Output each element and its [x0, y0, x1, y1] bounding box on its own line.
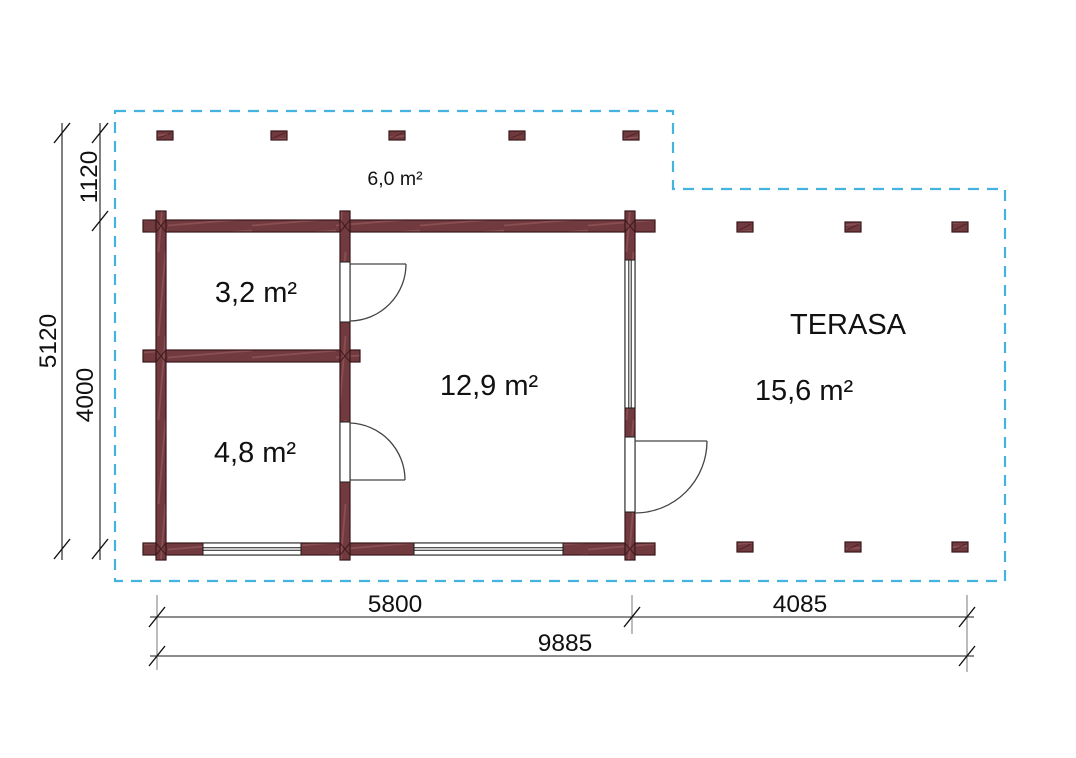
wall-west: [156, 211, 166, 560]
area-labels: 6,0 m² 3,2 m² 4,8 m² 12,9 m² TERASA 15,6…: [214, 168, 907, 469]
wall-room-divider: [143, 350, 360, 362]
door-room-a: [340, 262, 406, 322]
terrace-name-label: TERASA: [790, 309, 907, 341]
dimension-left: 1120 4000 5120: [35, 123, 108, 560]
dimension-label-4000: 4000: [72, 368, 99, 423]
floor-plan-canvas: 5800 4085 9885 1120 4000 5120 6,0 m² 3,2…: [0, 0, 1076, 758]
dimension-label-1120: 1120: [76, 151, 103, 204]
room-a-area-label: 3,2 m²: [215, 277, 298, 309]
porch-area-label: 6,0 m²: [367, 168, 423, 190]
window-east: [625, 260, 635, 408]
dimension-bottom: 5800 4085 9885: [149, 591, 975, 672]
log-crossings: [156, 220, 635, 555]
terrace-area-label: 15,6 m²: [755, 375, 854, 407]
dimension-label-5120: 5120: [35, 314, 62, 369]
wall-north: [143, 220, 655, 232]
window-south-1: [203, 543, 301, 555]
roof-outline-dashed: [115, 111, 1005, 581]
dimension-label-5800: 5800: [368, 591, 423, 618]
dimension-label-9885: 9885: [538, 630, 593, 657]
window-south-2: [414, 543, 563, 555]
room-b-area-label: 4,8 m²: [214, 437, 297, 469]
door-terrace: [625, 437, 707, 513]
floor-plan-drawing: 5800 4085 9885 1120 4000 5120 6,0 m² 3,2…: [0, 0, 1076, 758]
room-c-area-label: 12,9 m²: [440, 370, 539, 402]
door-room-b: [340, 422, 405, 482]
roof-posts-front-row: [157, 131, 639, 140]
dimension-label-4085: 4085: [773, 591, 828, 618]
